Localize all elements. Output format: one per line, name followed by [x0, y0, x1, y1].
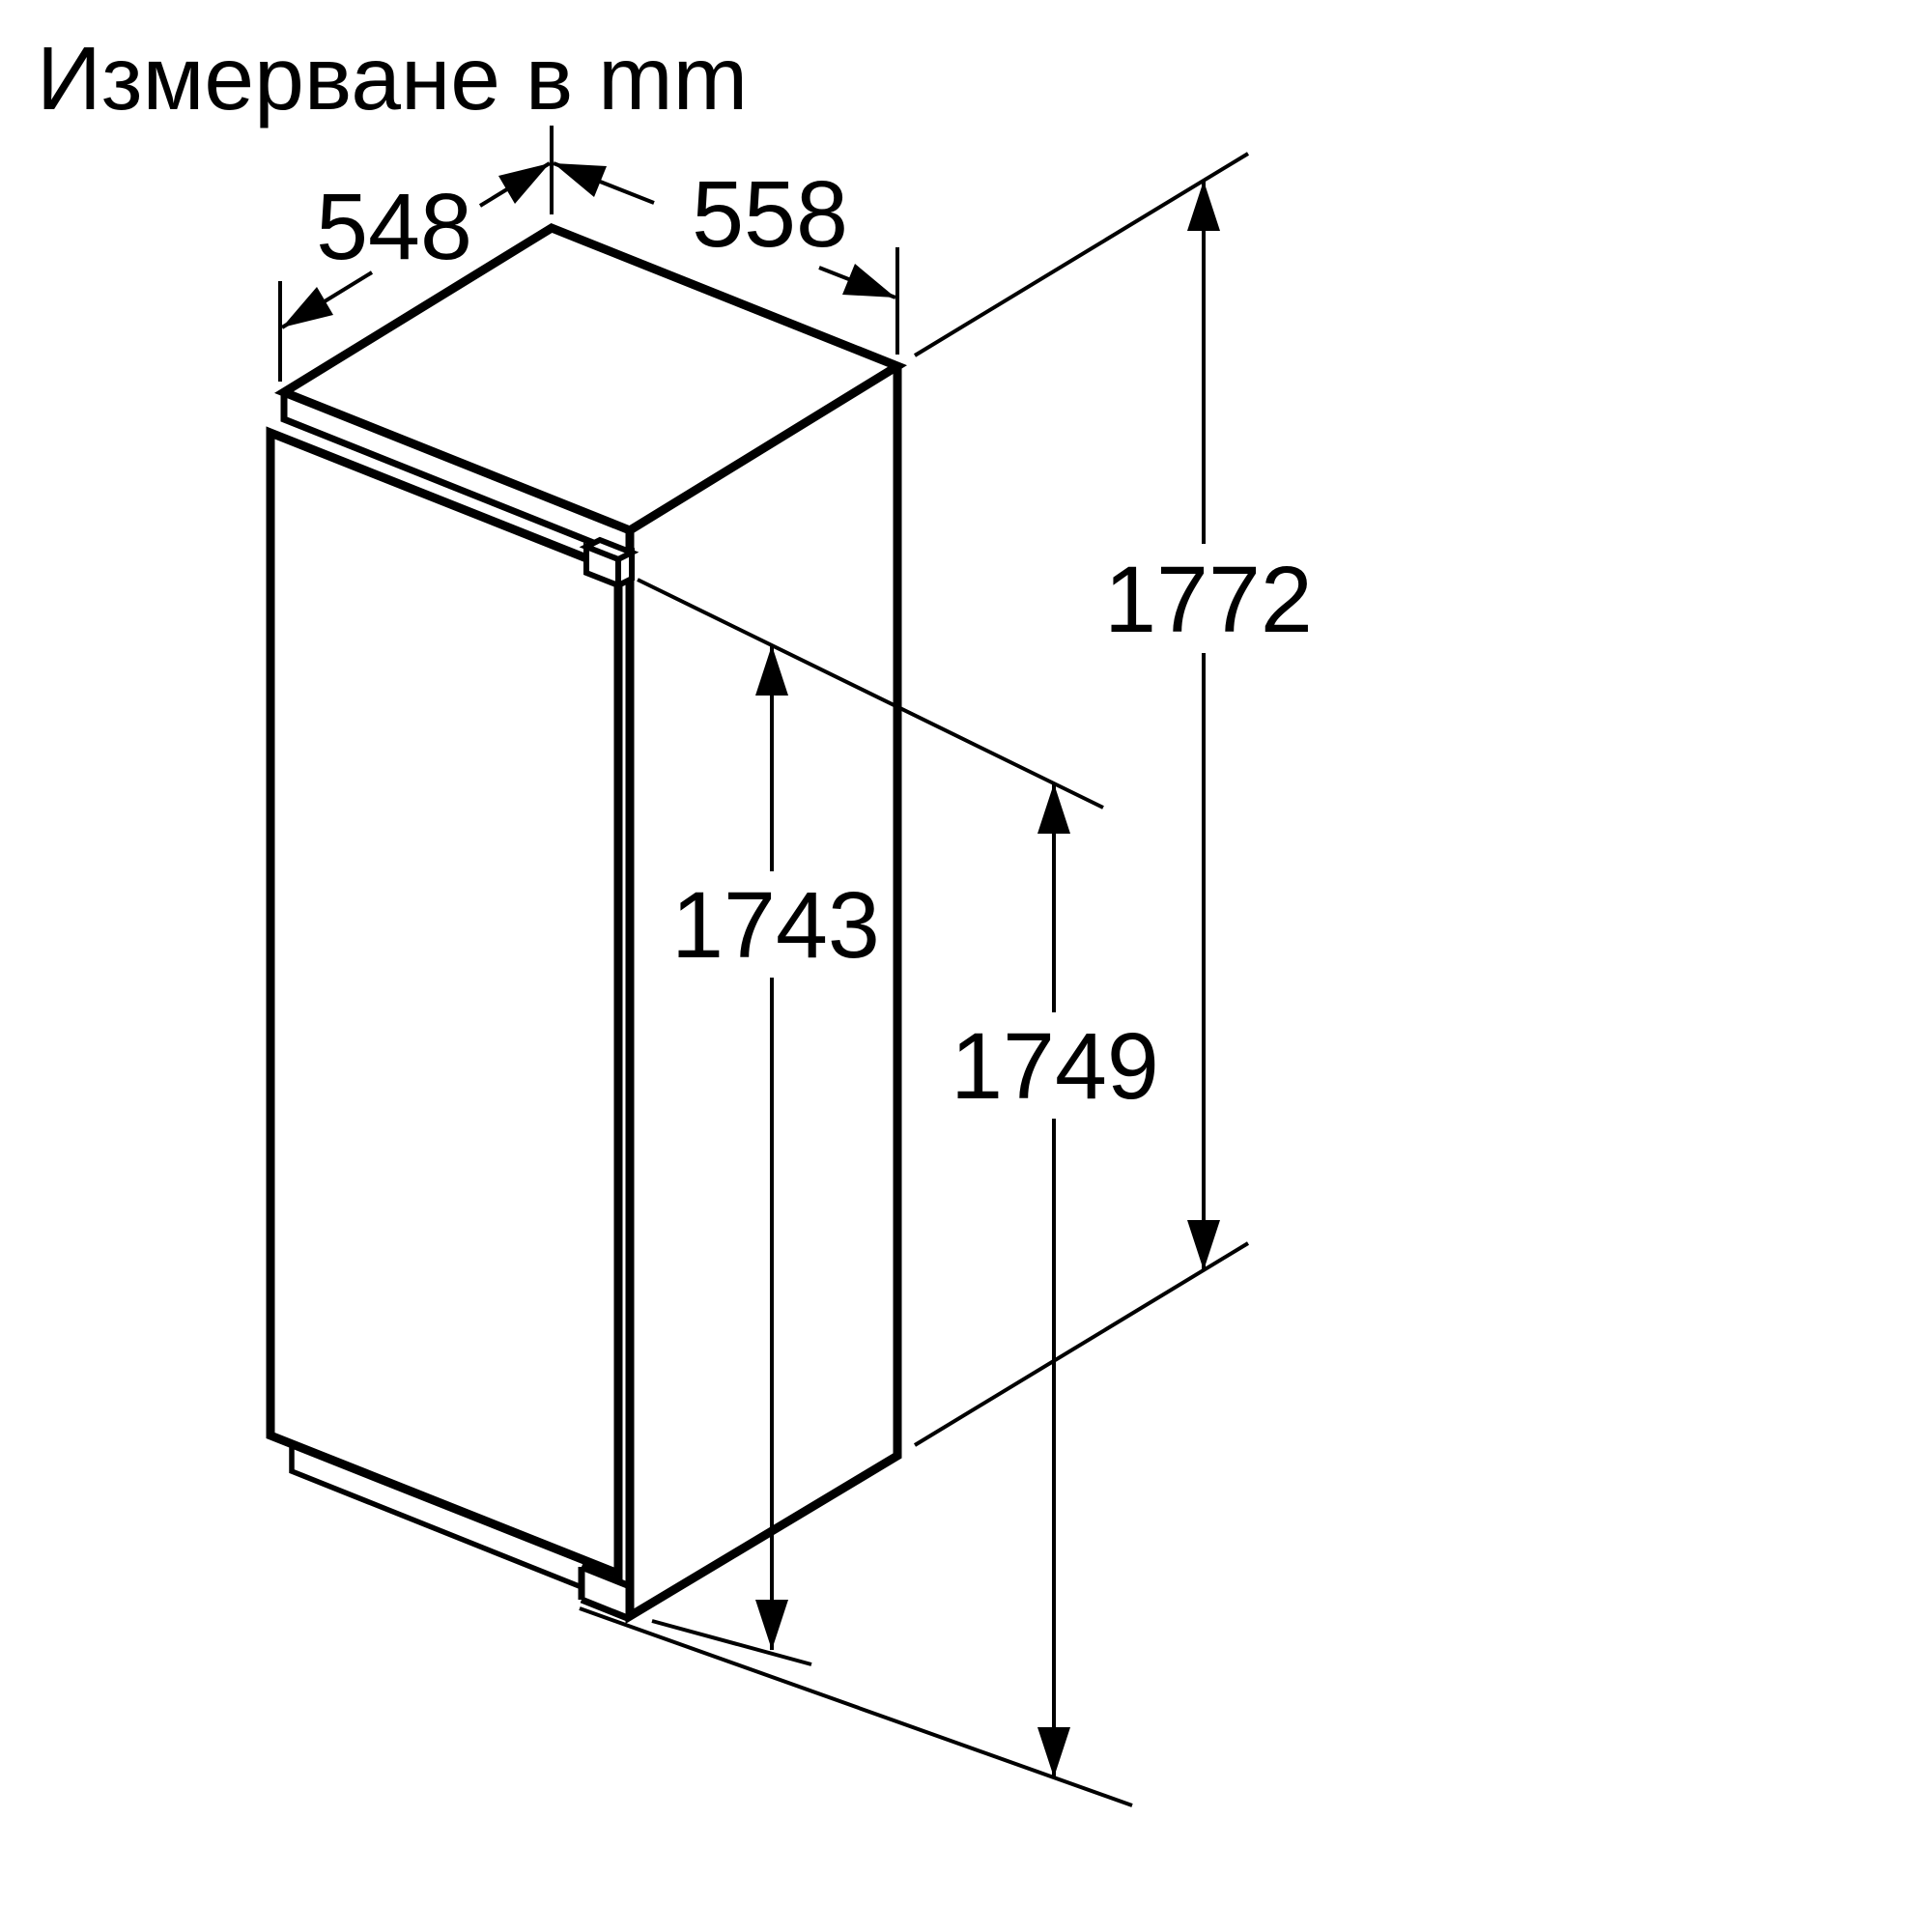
page-title: Измерване в mm — [37, 28, 748, 128]
top-hinge-block — [586, 540, 632, 585]
arrowhead-1749-bottom — [1037, 1727, 1070, 1777]
extension-line-floor — [580, 1608, 1132, 1805]
extension-line-1772-bottom — [915, 1243, 1248, 1445]
dimension-1772: 1772 — [915, 154, 1313, 1445]
hinge-side-face — [618, 553, 632, 585]
arrowhead-548-inner — [498, 163, 550, 204]
extension-line-door-top — [638, 580, 1103, 808]
extension-line-1772-top — [915, 154, 1248, 355]
arrowhead-558-outer — [842, 264, 895, 298]
door-panel — [270, 433, 618, 1574]
dim-label-548: 548 — [316, 174, 472, 279]
dim-label-1772: 1772 — [1104, 547, 1313, 652]
arrowhead-558-inner — [554, 163, 607, 197]
arrowhead-1743-bottom — [755, 1600, 788, 1650]
dim-label-1743: 1743 — [671, 872, 880, 978]
technical-drawing: Измерване в mm — [0, 0, 1932, 1932]
dim-label-1749: 1749 — [951, 1013, 1159, 1119]
dim-label-558: 558 — [692, 161, 848, 267]
dimension-1743: 1743 — [652, 645, 880, 1664]
dimension-diagram-page: Измерване в mm — [0, 0, 1932, 1932]
dimension-558: 558 — [554, 161, 897, 355]
arrowhead-548-outer — [282, 287, 333, 327]
